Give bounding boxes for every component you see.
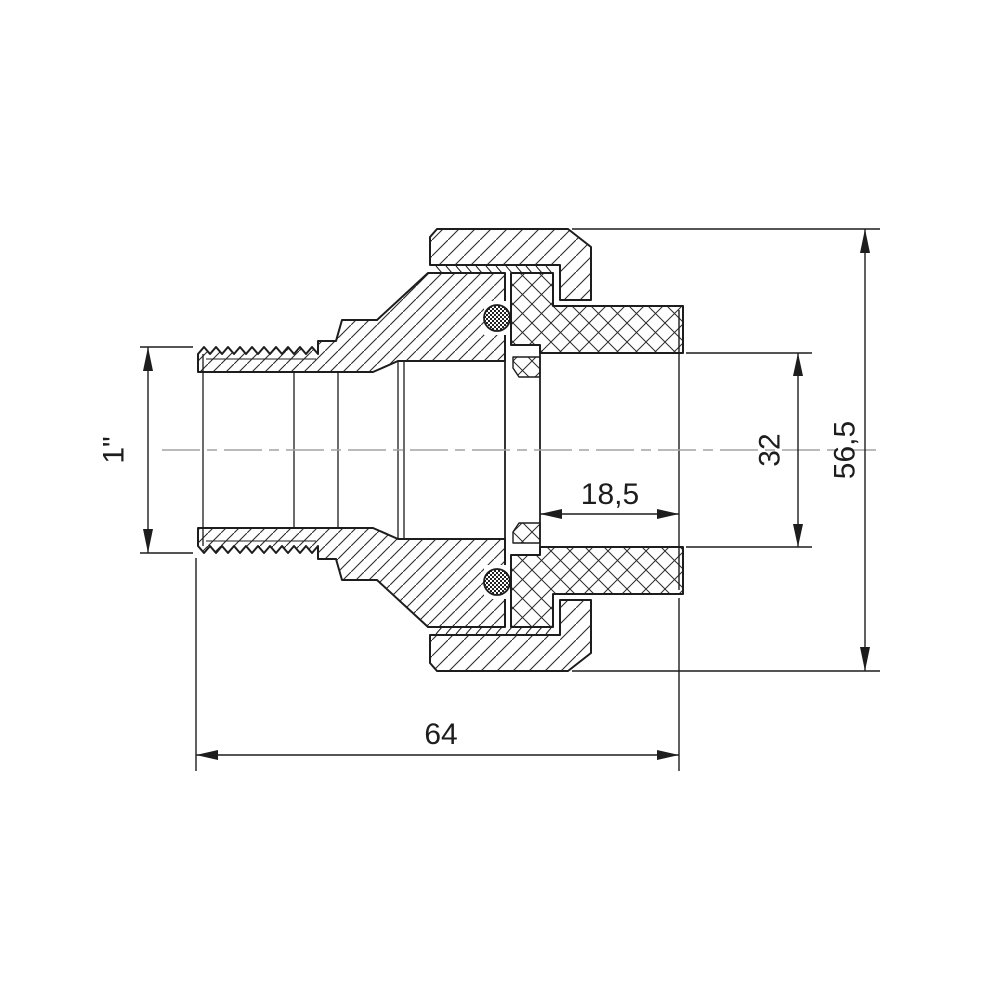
dim-label-thread-size: 1" [98,436,131,463]
drawing-canvas: 1" 18,5 32 56,5 64 [0,0,1000,1000]
socket-seal-ridge-top [513,357,540,377]
dim-label-bore-diameter: 32 [754,433,787,466]
technical-drawing: 1" 18,5 32 56,5 64 [0,0,1000,1000]
socket-seal-ridge-bottom [513,523,540,543]
dim-label-body-diameter: 56,5 [829,421,862,479]
o-ring-bottom [484,569,510,595]
dim-label-overall-length: 64 [424,718,457,751]
o-ring-top [484,305,510,331]
page-background [0,0,1000,1000]
dim-label-socket-depth: 18,5 [581,478,639,511]
